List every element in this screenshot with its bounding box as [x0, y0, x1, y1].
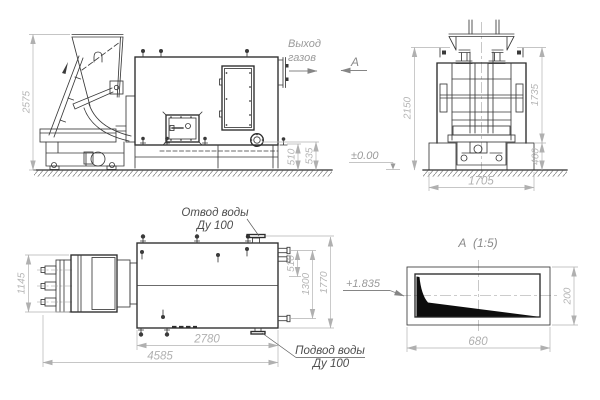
dim-side-1735: 1735 [530, 83, 541, 106]
plan-feeder [37, 255, 137, 312]
engineering-drawing: 2575 510 535 Выход газов А ±0.00 [0, 0, 600, 400]
plan-body [137, 234, 290, 336]
water-outlet-text-2: Ду 100 [195, 220, 234, 232]
water-inlet-text-2: Ду 100 [311, 358, 350, 370]
zero-level-mark: ±0.00 [349, 150, 400, 170]
water-inlet-label: Подвод воды Ду 100 [262, 333, 365, 370]
dim-plan-4585: 4585 [147, 351, 173, 363]
pusher-cylinder [73, 81, 131, 141]
dim-plan-510: 510 [286, 255, 297, 272]
section-level-mark: +1.835 [343, 278, 404, 296]
ground-side [423, 170, 567, 177]
screw-fitting [37, 266, 74, 306]
deposit-wedge [417, 277, 538, 317]
dim-front-535: 535 [305, 147, 316, 164]
dim-plan-1145: 1145 [17, 272, 28, 294]
water-outlet-label: Отвод воды Ду 100 [181, 207, 259, 236]
water-inlet-flange [251, 328, 265, 334]
section-arrow-letter: А [350, 55, 359, 69]
dim-plan-2780: 2780 [193, 334, 220, 346]
dim-side-1705: 1705 [468, 176, 494, 188]
side-view: 2150 1735 460 1705 [403, 20, 568, 191]
gas-outlet-label: Выход газов [288, 38, 321, 71]
front-dimensions: 2575 510 535 [22, 35, 320, 171]
section-cut-mark: А [341, 55, 367, 71]
dim-front-height: 2575 [22, 90, 33, 114]
large-door [220, 66, 255, 130]
dim-side-2150: 2150 [403, 96, 414, 120]
bottom-fittings [141, 137, 288, 145]
plan-top-bolts [141, 234, 251, 243]
ground-front [34, 170, 332, 177]
section-view-title: А (1:5) [457, 236, 497, 250]
lifting-eye-icon [141, 49, 249, 57]
gas-outlet-flange [278, 58, 289, 88]
zero-level-text: ±0.00 [351, 150, 379, 162]
plan-inner-fittings [140, 247, 249, 319]
dim-front-510: 510 [287, 148, 298, 165]
gas-outlet-text-2: газов [288, 52, 316, 64]
section-view: А (1:5) +1.835 680 200 [343, 236, 578, 352]
dim-section-680: 680 [468, 336, 488, 348]
dim-plan-1300: 1300 [301, 272, 312, 295]
dim-plan-1770: 1770 [319, 271, 330, 294]
dim-side-460: 460 [531, 148, 542, 165]
water-inlet-text-1: Подвод воды [295, 345, 365, 357]
dim-section-200: 200 [563, 287, 574, 305]
front-view: 2575 510 535 Выход газов А ±0.00 [22, 35, 401, 177]
section-level-text: +1.835 [346, 278, 381, 290]
plan-view: 1145 510 1300 1770 2780 4585 Отвод воды … [17, 207, 366, 370]
fuel-hopper [49, 35, 123, 138]
water-outlet-text-1: Отвод воды [181, 207, 249, 219]
gas-outlet-text-1: Выход [288, 38, 321, 50]
access-door [163, 112, 202, 145]
boiler-body [135, 49, 289, 168]
